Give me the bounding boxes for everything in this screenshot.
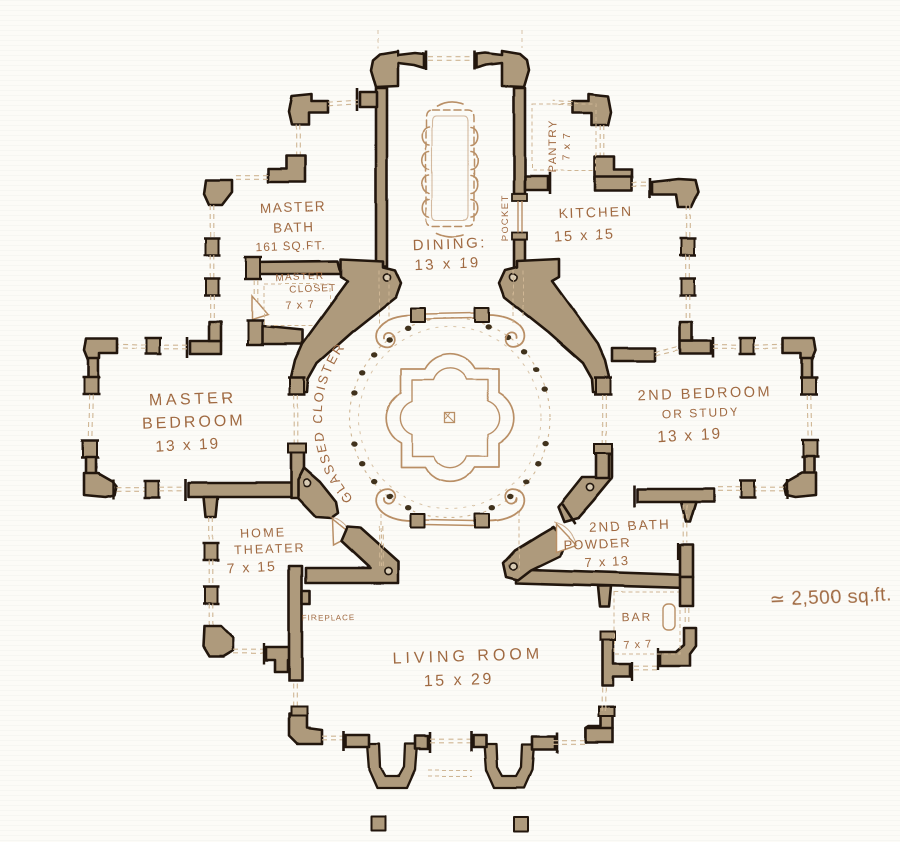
svg-text:15 x 15: 15 x 15 [554, 226, 616, 245]
svg-text:CLOSET: CLOSET [289, 283, 337, 296]
svg-text:FIREPLACE: FIREPLACE [302, 613, 356, 623]
svg-text:PANTRY: PANTRY [547, 120, 559, 173]
svg-text:DINING:: DINING: [412, 235, 487, 255]
svg-text:7 x 15: 7 x 15 [226, 558, 277, 577]
svg-text:7 x 13: 7 x 13 [584, 553, 629, 570]
svg-text:≃ 2,500 sq.ft.: ≃ 2,500 sq.ft. [769, 584, 892, 611]
svg-text:13 x 19: 13 x 19 [155, 435, 221, 455]
svg-text:7 x 7: 7 x 7 [285, 299, 314, 312]
svg-text:MASTER: MASTER [275, 271, 324, 285]
svg-text:7 x 7: 7 x 7 [561, 132, 573, 160]
svg-text:OR STUDY: OR STUDY [662, 405, 740, 422]
svg-text:2ND BATH: 2ND BATH [589, 517, 671, 535]
svg-text:KITCHEN: KITCHEN [558, 203, 634, 222]
svg-text:POCKET: POCKET [500, 194, 511, 241]
svg-text:BEDROOM: BEDROOM [142, 412, 246, 433]
svg-text:15 x 29: 15 x 29 [424, 671, 495, 690]
svg-text:THEATER: THEATER [234, 541, 306, 557]
svg-text:2ND BEDROOM: 2ND BEDROOM [637, 384, 773, 405]
svg-text:13 x 19: 13 x 19 [657, 425, 723, 445]
svg-text:MASTER: MASTER [149, 389, 237, 409]
svg-text:MASTER: MASTER [260, 199, 326, 216]
svg-text:BATH: BATH [273, 219, 315, 235]
svg-text:LIVING ROOM: LIVING ROOM [392, 645, 543, 667]
svg-text:BAR: BAR [621, 610, 652, 625]
svg-text:161 SQ.FT.: 161 SQ.FT. [255, 238, 326, 254]
svg-text:POWDER: POWDER [563, 535, 631, 552]
svg-text:HOME: HOME [240, 525, 286, 541]
svg-text:13 x 19: 13 x 19 [414, 255, 481, 274]
svg-text:7 x 7: 7 x 7 [623, 638, 652, 651]
